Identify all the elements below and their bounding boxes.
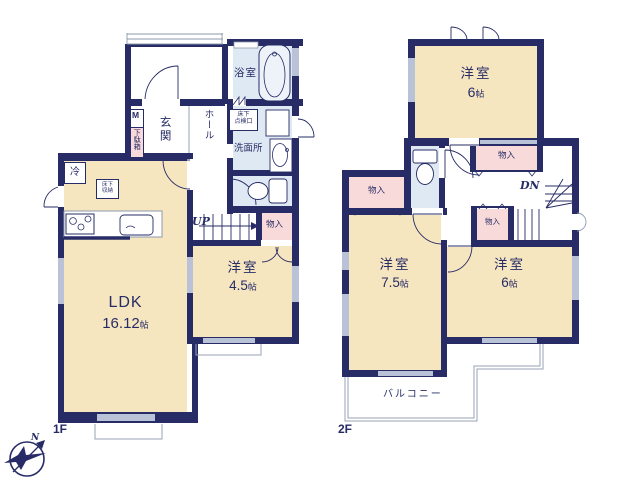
toilet-2f-door-arc	[445, 150, 473, 178]
toilet-2f-floor	[411, 146, 439, 208]
balcony-label: バルコニー	[383, 389, 443, 400]
shoe-cabinet-label: 下駄箱	[133, 129, 141, 150]
sliding-door	[187, 257, 193, 293]
floorplan-canvas: 浴室 玄関 ホール M 下駄箱 洗面所 洗 床下 点検口 冷 床下 収納 UP …	[0, 0, 640, 480]
entrance-door-arc	[145, 66, 178, 99]
floor-2-label: 2F	[338, 423, 352, 436]
washroom-exterior-door-arc	[298, 119, 314, 137]
wall	[408, 39, 544, 46]
wall	[127, 44, 223, 47]
door-opening	[412, 208, 443, 215]
ldk-floor	[64, 161, 187, 412]
compass-north-label: N	[31, 434, 39, 444]
underfloor-hatch-label: 床下 点検口	[229, 112, 258, 125]
bedroom-west-label: 洋室 7.5帖	[349, 258, 441, 291]
closet-opening	[261, 240, 292, 246]
closet-center-label: 物入	[477, 218, 508, 226]
compass	[4, 440, 46, 476]
porch-steps	[127, 33, 223, 44]
wall	[537, 39, 544, 145]
window	[292, 48, 299, 76]
window	[342, 252, 349, 270]
entrance-door-opening	[142, 99, 180, 106]
window	[97, 414, 155, 421]
bath-label: 浴室	[234, 68, 257, 80]
wall	[572, 138, 579, 344]
compass-circle	[10, 442, 44, 476]
door-opening	[227, 144, 233, 158]
toilet-floor	[233, 176, 292, 206]
entrance-label: 玄関	[158, 116, 171, 143]
window	[292, 266, 299, 302]
wall	[227, 170, 299, 176]
wall	[222, 44, 228, 104]
wall	[508, 208, 514, 247]
bath-door-opening	[231, 99, 246, 106]
ldk-door-opening	[187, 159, 193, 190]
window	[572, 256, 579, 300]
wall	[227, 206, 299, 213]
window	[342, 294, 349, 336]
washer-label: 洗	[272, 117, 282, 127]
wall	[471, 208, 477, 247]
floor-1-label: 1F	[53, 423, 67, 436]
underfloor-storage-label: 床下 収納	[96, 182, 119, 194]
window	[203, 338, 255, 343]
bedroom-north-label: 洋室 6帖	[415, 67, 537, 100]
closet-west-label: 物入	[349, 186, 404, 195]
closet-1f-label: 物入	[266, 220, 283, 229]
wall	[58, 153, 193, 161]
window	[408, 58, 415, 102]
fridge-label: 冷	[70, 167, 80, 178]
wall	[256, 213, 262, 240]
compass-north-arrow	[13, 445, 40, 472]
closet-north-label: 物入	[476, 151, 537, 160]
stairs-down-label: DN	[520, 180, 540, 192]
closet-front-line	[470, 170, 538, 172]
compass-needle	[4, 446, 46, 470]
door-opening	[449, 138, 479, 146]
wall	[342, 170, 410, 177]
bedroom-4-5-label: 洋室 4.5帖	[203, 261, 283, 294]
door-opening	[447, 240, 474, 247]
toilet-door-opening	[439, 148, 445, 178]
washroom-label: 洗面所	[234, 144, 263, 154]
window	[378, 371, 433, 376]
ldk-terrace-outline	[95, 424, 162, 439]
hall-label: ホール	[202, 109, 212, 141]
wall	[537, 146, 543, 172]
stairs-up-label: UP	[192, 216, 210, 228]
meter-box-label: M	[132, 111, 139, 120]
door-opening	[292, 116, 299, 138]
kitchen-door-opening	[58, 186, 64, 207]
ldk-label: LDK 16.12帖	[64, 294, 187, 332]
bedroom-west-floor	[349, 215, 441, 370]
bedroom-terrace-outline	[196, 344, 261, 355]
bedroom-east-label: 洋室 6帖	[447, 258, 572, 291]
kitchen-exterior-door-arc	[44, 187, 58, 207]
wall	[342, 208, 349, 377]
window	[482, 338, 537, 343]
sliding-door	[480, 140, 537, 144]
opening	[572, 214, 579, 230]
